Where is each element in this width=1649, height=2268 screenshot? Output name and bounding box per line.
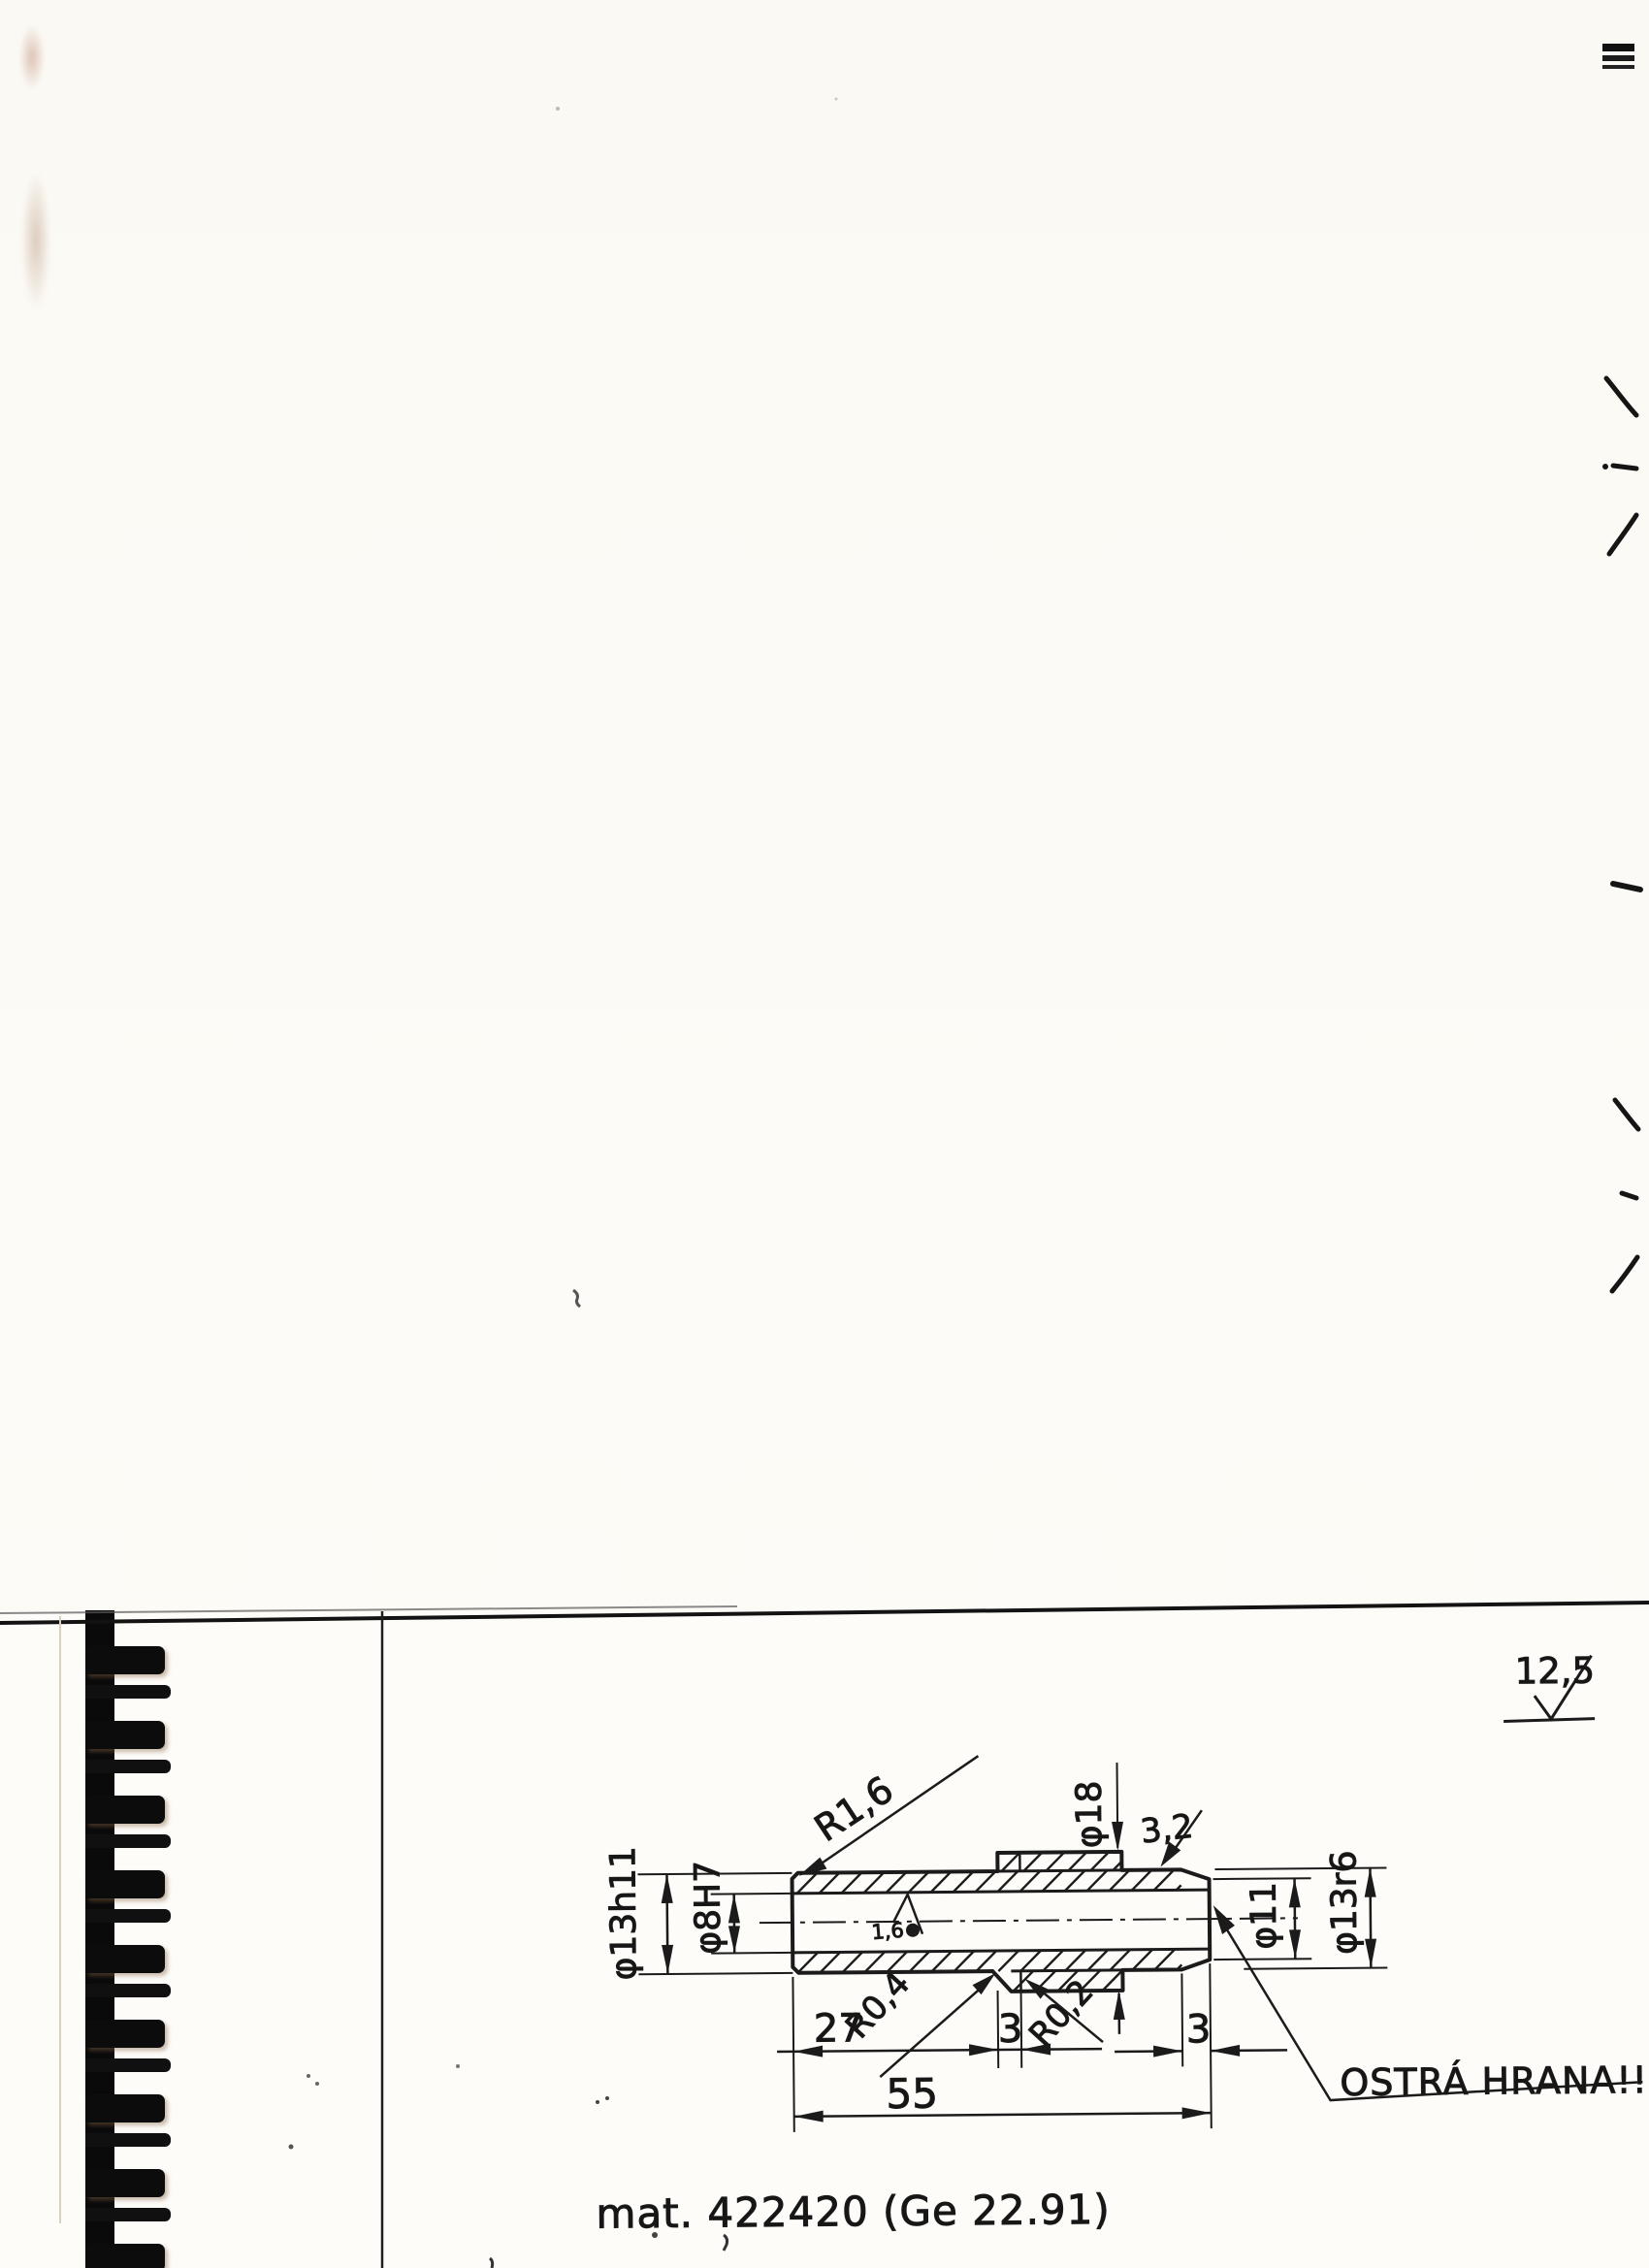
label-bore-roughness: 1,6: [871, 1919, 905, 1945]
sheet-separator: [0, 1603, 1649, 2268]
label-collar-dia: φ18: [1070, 1780, 1111, 1848]
label-outer-dia-left: φ13h11: [603, 1846, 644, 1981]
label-radius-left: R1,6: [807, 1767, 901, 1850]
scanned-page: φ13h11 φ8H7 R1,6 φ18 3,2 φ11 φ13r6 R0,4 …: [0, 0, 1649, 2268]
dim-end-width: 3: [1186, 2007, 1212, 2052]
page-artwork: φ13h11 φ8H7 R1,6 φ18 3,2 φ11 φ13r6 R0,4 …: [0, 0, 1649, 2268]
surface-note: 12,5: [1515, 1650, 1596, 1693]
label-chamfer: 3,2: [1139, 1807, 1195, 1852]
dim-total-length: 55: [886, 2070, 938, 2118]
label-outer-dia-right: φ13r6: [1324, 1850, 1365, 1955]
scan-specks: [289, 98, 838, 2268]
label-end-dia: φ11: [1245, 1882, 1285, 1950]
material-note: mat. 422420 (Ge 22.91): [596, 2186, 1111, 2238]
centerline: [760, 1918, 1298, 1923]
edge-tick-marks: [1602, 378, 1640, 1291]
dim-groove-width: 3: [998, 2007, 1023, 2052]
dim-length-left: 27: [814, 2006, 863, 2051]
technical-drawing: φ13h11 φ8H7 R1,6 φ18 3,2 φ11 φ13r6 R0,4 …: [592, 1649, 1649, 2237]
sharp-edge-note: OSTRÁ HRANA!!: [1340, 2058, 1648, 2104]
label-bore-dia: φ8H7: [688, 1861, 728, 1955]
